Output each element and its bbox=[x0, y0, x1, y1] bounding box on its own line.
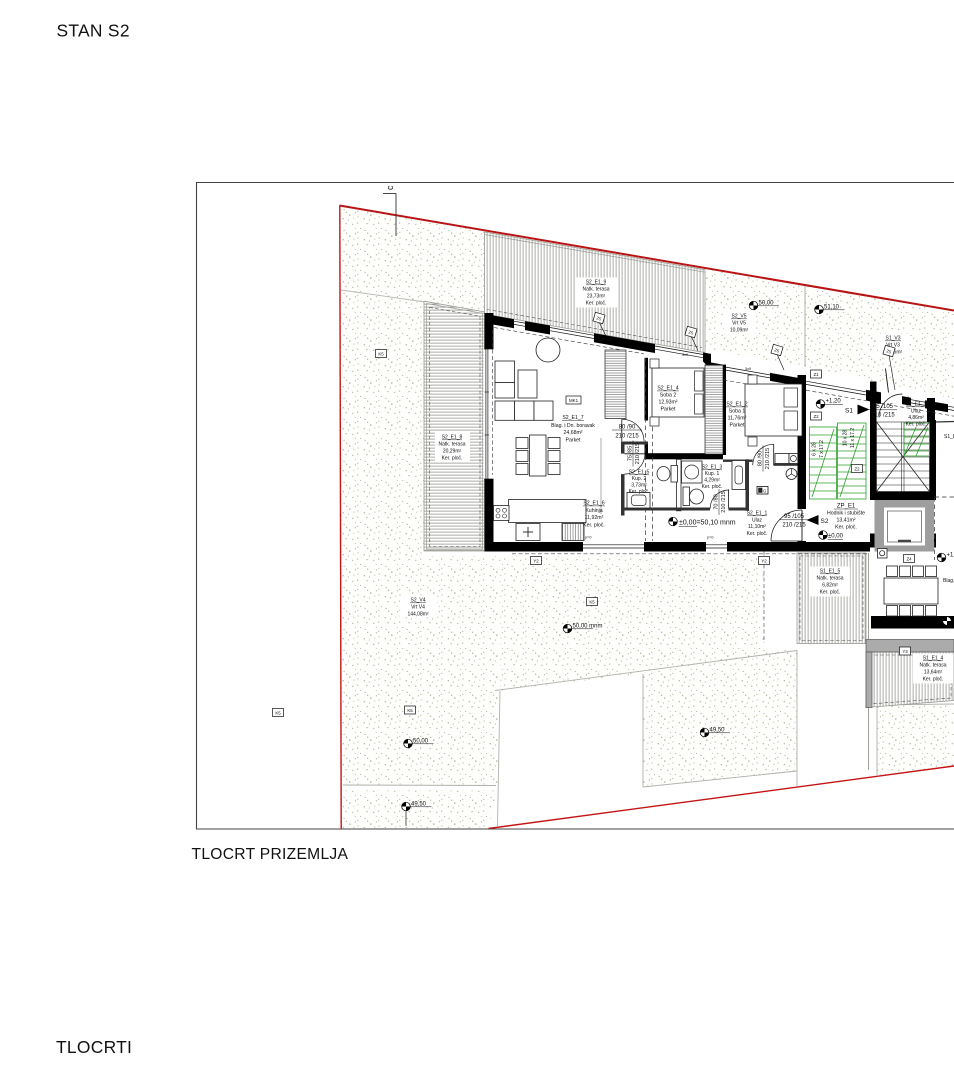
svg-text:Ker. ploč.: Ker. ploč. bbox=[923, 677, 944, 683]
svg-text:Ulaz: Ulaz bbox=[911, 409, 922, 415]
svg-text:Ker. ploč.: Ker. ploč. bbox=[702, 484, 723, 490]
svg-text:6,82m²: 6,82m² bbox=[822, 583, 838, 589]
svg-text:Ker. ploč.: Ker. ploč. bbox=[629, 489, 650, 495]
svg-text:210 /215: 210 /215 bbox=[615, 434, 639, 440]
svg-text:Vrt V4: Vrt V4 bbox=[411, 605, 425, 611]
svg-text:Ker. ploč.: Ker. ploč. bbox=[835, 525, 857, 531]
svg-text:20,29m²: 20,29m² bbox=[443, 449, 462, 455]
svg-text:Blag.: Blag. bbox=[943, 578, 954, 584]
svg-text:c: c bbox=[385, 185, 395, 190]
svg-text:Ker. ploč.: Ker. ploč. bbox=[586, 301, 607, 307]
svg-text:4,29m²: 4,29m² bbox=[704, 478, 720, 484]
svg-text:7 x 17.2: 7 x 17.2 bbox=[819, 440, 825, 458]
svg-text:75 /85: 75 /85 bbox=[628, 446, 634, 461]
svg-text:144,08m²: 144,08m² bbox=[407, 612, 428, 618]
svg-text:11,10m²: 11,10m² bbox=[748, 524, 766, 530]
svg-text:70 /80: 70 /80 bbox=[714, 494, 720, 509]
svg-text:K5: K5 bbox=[407, 708, 413, 713]
svg-text:S2_E1_4: S2_E1_4 bbox=[657, 386, 678, 392]
svg-text:11,92m²: 11,92m² bbox=[585, 515, 604, 521]
svg-text:3x9: 3x9 bbox=[598, 338, 604, 342]
svg-text:Natk. terasa: Natk. terasa bbox=[583, 287, 610, 293]
svg-text:Y2: Y2 bbox=[761, 559, 767, 564]
svg-text:10 x 28: 10 x 28 bbox=[843, 430, 849, 447]
svg-text:Ker. ploč.: Ker. ploč. bbox=[820, 590, 841, 596]
svg-text:Z2: Z2 bbox=[813, 414, 819, 419]
svg-text:S2_E1_6: S2_E1_6 bbox=[583, 501, 604, 507]
svg-text:Kup. 1: Kup. 1 bbox=[705, 471, 720, 477]
svg-text:4,86m²: 4,86m² bbox=[908, 415, 924, 421]
svg-text:S1: S1 bbox=[845, 408, 853, 415]
svg-text:Y3: Y3 bbox=[902, 649, 908, 654]
svg-text:STAN S2: STAN S2 bbox=[57, 21, 130, 41]
svg-text:95 /105: 95 /105 bbox=[784, 514, 805, 520]
svg-text:S2: S2 bbox=[821, 518, 829, 525]
svg-text:Parket: Parket bbox=[566, 438, 582, 444]
svg-text:210 /215: 210 /215 bbox=[782, 523, 806, 529]
svg-text:TLOCRTI: TLOCRTI bbox=[56, 1037, 132, 1057]
svg-text:Soba 2: Soba 2 bbox=[660, 393, 677, 399]
svg-text:Natk. terasa: Natk. terasa bbox=[920, 663, 947, 669]
svg-text:Parket: Parket bbox=[661, 407, 677, 413]
svg-text:10,09m²: 10,09m² bbox=[730, 328, 749, 334]
svg-text:Soba 1: Soba 1 bbox=[729, 409, 746, 415]
svg-text:±0,00: ±0,00 bbox=[828, 534, 844, 540]
svg-text:Ker. ploč.: Ker. ploč. bbox=[442, 456, 463, 462]
svg-text:210 /215: 210 /215 bbox=[721, 491, 727, 512]
svg-text:K5: K5 bbox=[378, 352, 384, 357]
svg-text:Ulaz: Ulaz bbox=[752, 518, 763, 524]
svg-text:210 /215: 210 /215 bbox=[765, 448, 771, 469]
svg-text:11 x 17.2: 11 x 17.2 bbox=[850, 428, 856, 448]
svg-text:3x9: 3x9 bbox=[745, 367, 751, 371]
svg-text:Parket: Parket bbox=[730, 423, 746, 429]
svg-text:3x9: 3x9 bbox=[682, 353, 688, 357]
svg-text:3x9: 3x9 bbox=[903, 396, 909, 400]
svg-text:6 x 28: 6 x 28 bbox=[812, 442, 818, 456]
svg-text:13,64m²: 13,64m² bbox=[924, 670, 943, 676]
svg-text:80 /90: 80 /90 bbox=[758, 451, 764, 466]
svg-text:Natk. terasa: Natk. terasa bbox=[817, 576, 844, 582]
svg-text:G: G bbox=[763, 489, 766, 494]
svg-text:11,76m²: 11,76m² bbox=[728, 416, 747, 422]
svg-text:Y2: Y2 bbox=[533, 559, 539, 564]
svg-text:p=0: p=0 bbox=[585, 536, 591, 540]
svg-text:p=0: p=0 bbox=[707, 536, 713, 540]
svg-text:S2_E1_7: S2_E1_7 bbox=[562, 415, 583, 421]
svg-text:+1,20: +1,20 bbox=[826, 399, 842, 405]
svg-text:24,68m²: 24,68m² bbox=[563, 430, 582, 436]
svg-text:S2_E1_2: S2_E1_2 bbox=[726, 402, 747, 408]
svg-text:ZP_E1: ZP_E1 bbox=[837, 504, 856, 510]
svg-text:13,41m²: 13,41m² bbox=[836, 518, 855, 524]
svg-text:Ker. ploč.: Ker. ploč. bbox=[583, 523, 605, 529]
svg-text:80 /90: 80 /90 bbox=[619, 425, 636, 431]
svg-text:MK1: MK1 bbox=[569, 398, 579, 403]
svg-text:23,73m²: 23,73m² bbox=[587, 294, 606, 300]
svg-text:Kuhinja: Kuhinja bbox=[585, 508, 602, 514]
svg-text:210 /215: 210 /215 bbox=[871, 413, 895, 419]
svg-text:12,93m²: 12,93m² bbox=[658, 400, 677, 406]
svg-text:±0,00=50,10 mnm: ±0,00=50,10 mnm bbox=[679, 520, 736, 527]
svg-text:Blag. i Dn. boravak: Blag. i Dn. boravak bbox=[551, 423, 595, 429]
svg-text:95 /105: 95 /105 bbox=[873, 404, 894, 410]
svg-text:TLOCRT PRIZEMLJA: TLOCRT PRIZEMLJA bbox=[192, 846, 349, 863]
svg-text:S1_E: S1_E bbox=[944, 434, 954, 440]
svg-text:210 /215: 210 /215 bbox=[635, 443, 641, 464]
svg-text:K5: K5 bbox=[589, 600, 595, 605]
svg-text:+1,2: +1,2 bbox=[947, 553, 954, 559]
svg-text:Natk. terasa: Natk. terasa bbox=[439, 442, 466, 448]
svg-text:Kup. 2: Kup. 2 bbox=[632, 476, 647, 482]
svg-text:Ker. ploč.: Ker. ploč. bbox=[906, 422, 927, 428]
svg-text:Z4: Z4 bbox=[906, 557, 912, 562]
svg-text:3,73m²: 3,73m² bbox=[631, 483, 647, 489]
svg-text:K5: K5 bbox=[275, 711, 281, 716]
svg-text:Z2: Z2 bbox=[854, 467, 860, 472]
svg-text:Z1: Z1 bbox=[813, 372, 819, 377]
svg-text:Hodnik i stubište: Hodnik i stubište bbox=[827, 511, 865, 517]
svg-text:Ker. ploč.: Ker. ploč. bbox=[747, 531, 768, 537]
svg-text:Vrt V5: Vrt V5 bbox=[732, 321, 746, 327]
